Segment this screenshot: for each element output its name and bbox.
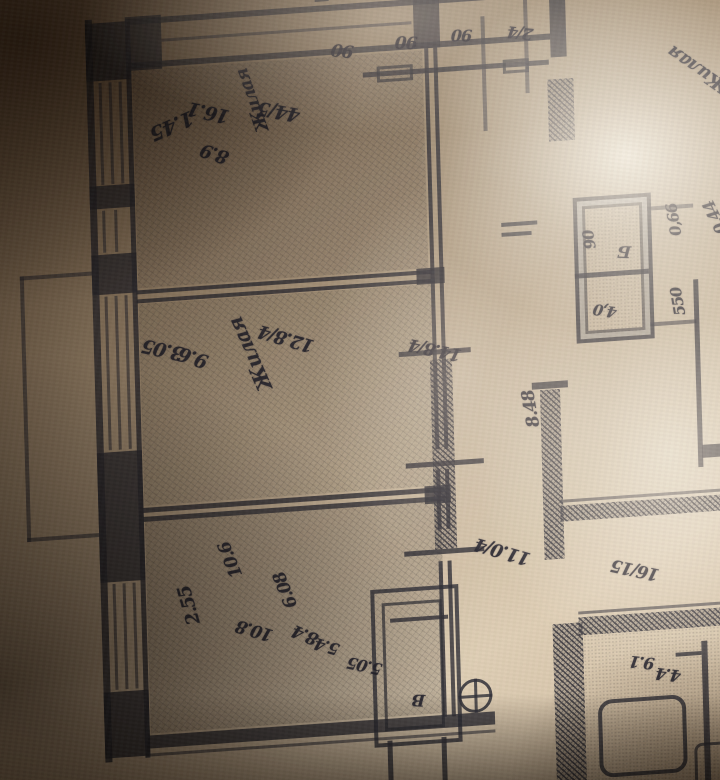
plan-annotation: 550 [667,286,689,317]
wall-stub [702,441,720,458]
wall-hatched [553,622,588,780]
window-symbol [123,583,129,689]
room-middle [139,284,437,506]
plan-annotation: 0,44 [699,198,720,238]
wall-hatched [540,389,565,560]
window-symbol [133,583,139,689]
plan-annotation: В [412,691,426,710]
floor-plan-photo: 1.4516.18.9Жилая44/59090902/4Жилая0,4490… [0,0,720,780]
balcony-outline [20,276,31,542]
plan-annotation: 4.4 [655,664,682,686]
window-symbol [114,296,121,450]
plan-annotation: 16/15 [609,555,661,585]
window-symbol [161,21,411,41]
door-sill [377,64,413,82]
plan-annotation: 90 [579,229,600,251]
window-symbol [119,82,125,184]
plan-annotation: 11.0/4 [473,533,534,569]
window-symbol [104,296,111,450]
window-symbol [124,295,131,449]
plan-annotation: 90 [395,31,418,52]
plan-layer: 1.4516.18.9Жилая44/59090902/4Жилая0,4490… [0,0,720,780]
wall [693,279,703,467]
window-symbol [99,83,105,185]
wall [523,0,530,93]
plan-annotation: 9.1 [629,652,656,674]
plan-annotation: Б [618,242,632,261]
balcony-outline [20,271,96,280]
wall-pier [125,15,163,71]
window-symbol [114,210,118,252]
plan-annotation: 90 [451,26,472,45]
plan-annotation: Жилая [664,41,720,98]
wall-pier [91,252,137,295]
wall-pier [97,450,146,583]
wall-stub [549,0,567,57]
wall-pier [104,690,151,759]
wall [441,737,448,780]
door-tick [501,220,537,227]
wall [480,16,487,131]
room-top [132,50,428,288]
bathtub-symbol [598,694,688,778]
window-symbol [109,82,115,184]
wall-stub [314,0,329,2]
plan-annotation: 2/4 [507,22,535,44]
stove-circle-icon [458,678,493,714]
window-symbol [102,211,106,253]
wall-hatched [547,78,575,142]
wall [129,0,549,25]
wall [650,319,696,326]
door-tick [501,231,531,237]
wall-pier [89,184,135,210]
window-symbol [113,584,119,690]
balcony-outline [27,533,103,542]
plan-annotation: 90 [331,39,355,61]
wall-hatched [430,358,457,549]
plan-annotation: 4,0 [592,300,618,321]
